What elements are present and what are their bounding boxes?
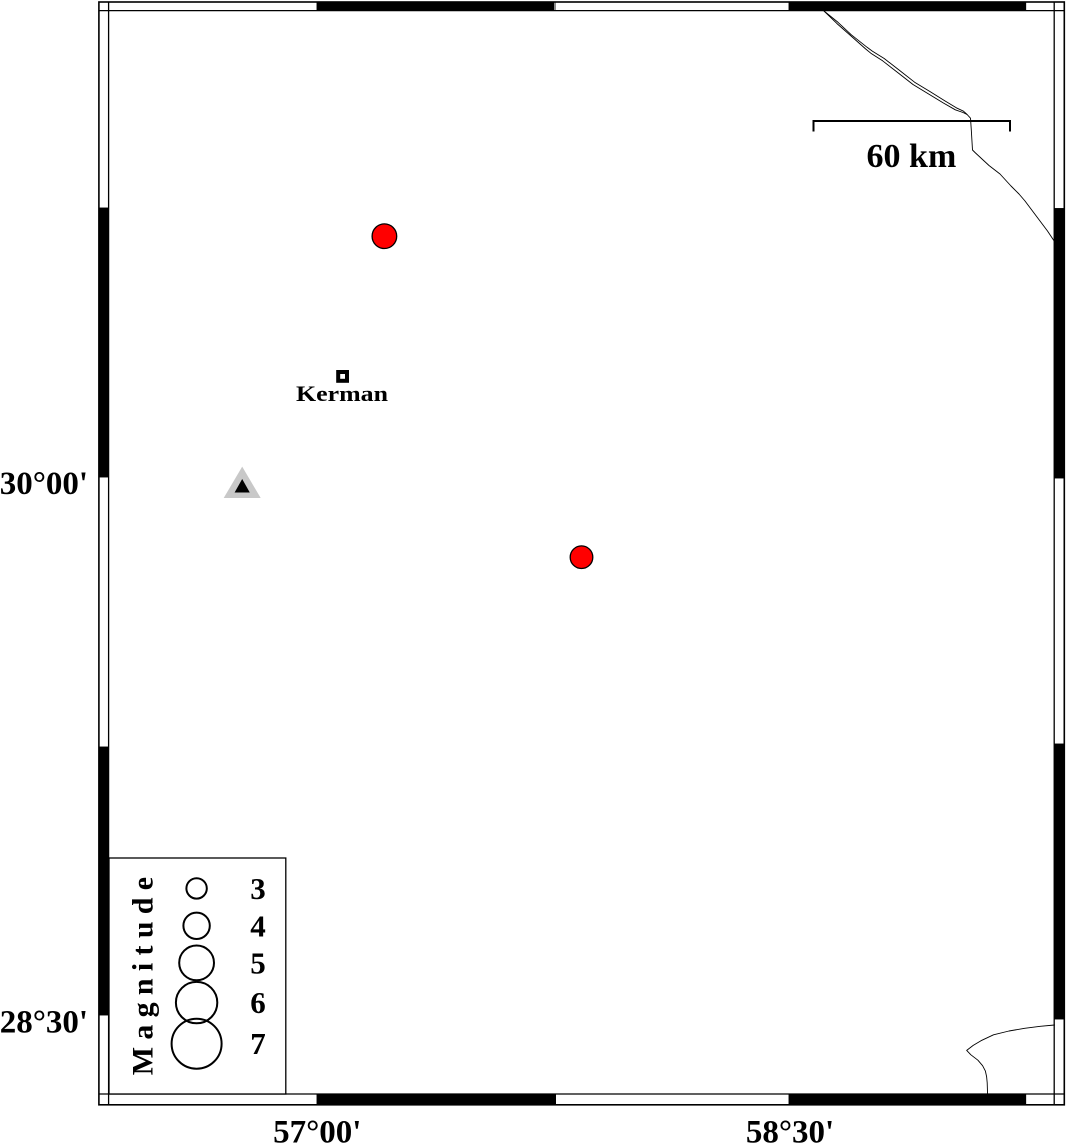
svg-text:Kerman: Kerman xyxy=(296,381,389,406)
svg-text:57°00': 57°00' xyxy=(273,1114,361,1143)
svg-text:30°00': 30°00' xyxy=(0,466,88,502)
svg-text:60 km: 60 km xyxy=(867,138,957,175)
svg-text:58°30': 58°30' xyxy=(746,1114,834,1143)
svg-text:7: 7 xyxy=(250,1026,266,1061)
svg-text:6: 6 xyxy=(250,985,266,1020)
svg-text:28°30': 28°30' xyxy=(0,1004,88,1040)
svg-text:4: 4 xyxy=(250,908,266,943)
svg-text:Magnitude: Magnitude xyxy=(126,870,159,1076)
svg-text:3: 3 xyxy=(250,871,266,906)
svg-text:5: 5 xyxy=(250,945,266,980)
